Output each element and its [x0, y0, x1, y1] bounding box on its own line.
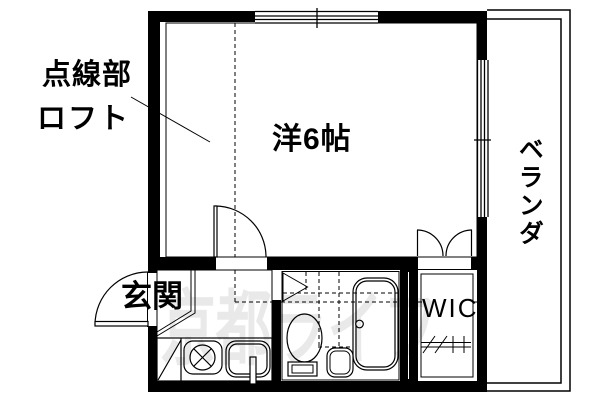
wall-divider-3	[472, 257, 487, 270]
watermark-text: 京都ライフ	[160, 262, 439, 381]
main-room-door-arc	[215, 206, 266, 257]
loft-label-line2: ロフト	[37, 104, 130, 134]
closet-door-arc-left	[417, 230, 443, 256]
closet-door-arc-right	[446, 230, 472, 256]
balcony-label: ベランダ	[516, 136, 542, 248]
main-room-door-leaf	[214, 206, 217, 257]
wall-left-upper	[148, 11, 160, 257]
main-room-label: 洋6帖	[272, 124, 352, 156]
wall-right-corner	[477, 11, 487, 60]
window-top	[255, 8, 378, 28]
wall-top-left	[148, 11, 255, 22]
entrance-door-leaf	[95, 322, 148, 327]
wall-bottom	[148, 381, 487, 392]
loft-leader-line	[131, 97, 210, 142]
main-room-door	[214, 206, 266, 257]
wall-top-right	[378, 11, 487, 23]
floor-plan: 点線部 ロフト 洋6帖 玄関 WIC ベランダ 京都ライフ	[0, 0, 600, 400]
loft-label-line1: 点線部	[42, 60, 132, 90]
closet-double-door	[417, 230, 472, 256]
